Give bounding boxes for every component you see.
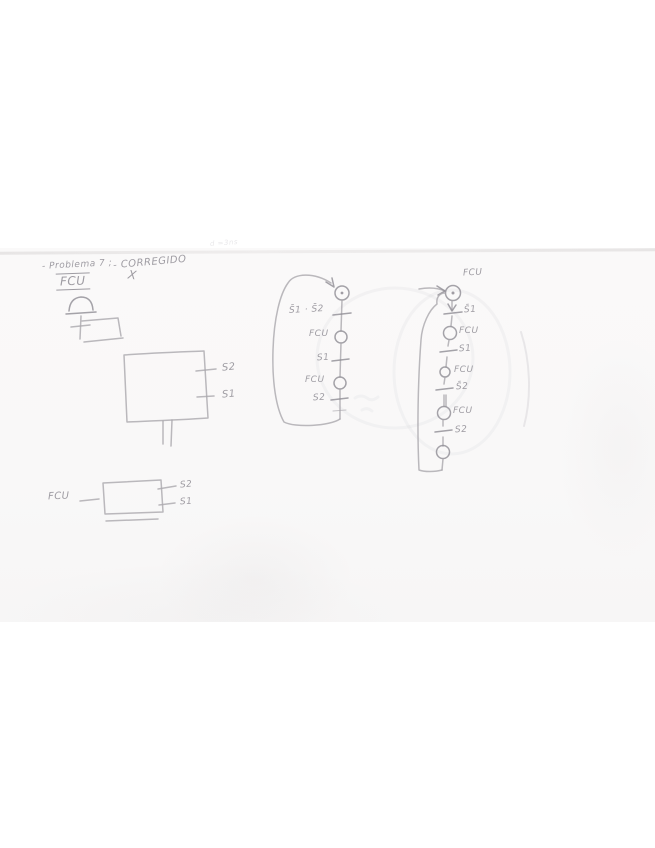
mid-transition-label-1: S̄1 · S̄2 xyxy=(289,305,324,316)
mid-state-label-2: FCU xyxy=(305,376,325,385)
right-state-label-1: FCU xyxy=(459,327,479,336)
initial-state-dot xyxy=(452,292,455,295)
pencil-drawing-layer xyxy=(0,0,655,848)
mid-transition-label-2: S1 xyxy=(317,354,330,364)
chain-segment xyxy=(341,300,342,331)
actuator-symbol xyxy=(66,297,123,342)
chain-segment-retraced xyxy=(444,395,446,406)
erased-scribble xyxy=(355,396,378,411)
tank-outline xyxy=(124,351,208,422)
chain-segment xyxy=(451,316,452,326)
right-state-label-3: FCU xyxy=(453,407,473,416)
dome-shape xyxy=(69,297,93,311)
bracket-bottom-line xyxy=(84,338,123,342)
photographed-notebook-page: d =3ns - Problema 7 ; - CORREGIDO X FCU xyxy=(0,0,655,848)
return-loop-line xyxy=(273,275,340,425)
tank-box xyxy=(124,351,216,446)
block-input-label: FCU xyxy=(48,492,70,503)
rod-line xyxy=(80,316,81,339)
transition-tick-4 xyxy=(435,430,452,432)
right-transition-label-1: S̄1 xyxy=(464,306,477,316)
block-underline xyxy=(106,519,158,521)
stray-pencil-arc xyxy=(521,332,529,426)
block-outline xyxy=(103,480,163,514)
transition-tick-2 xyxy=(440,350,457,352)
transition-tick-3 xyxy=(331,398,348,400)
sensor-tick-s2 xyxy=(196,369,216,371)
state-circle-fcu-1 xyxy=(335,331,347,343)
right-chain-title: FCU xyxy=(463,268,483,278)
state-circle-fcu-1 xyxy=(444,327,457,340)
fcu-block xyxy=(80,480,176,521)
output-tick-s1 xyxy=(159,503,175,505)
tank-sensor-label-bottom: S1 xyxy=(222,389,237,400)
block-output-label-top: S2 xyxy=(180,480,193,490)
right-transition-label-2: S1 xyxy=(459,345,472,355)
transition-tick-1 xyxy=(444,312,462,314)
middle-state-chain xyxy=(273,275,351,425)
return-loop-line xyxy=(418,293,445,472)
right-transition-label-4: S2 xyxy=(455,426,468,436)
initial-state-dot xyxy=(341,292,344,295)
mid-transition-label-3: S2 xyxy=(313,394,326,404)
state-circle-fcu-2 xyxy=(440,367,450,377)
block-output-label-bottom: S1 xyxy=(180,498,193,508)
tank-sensor-label-top: S2 xyxy=(222,362,237,373)
right-state-label-2: FCU xyxy=(454,366,474,375)
bracket-top-line xyxy=(82,318,121,336)
mid-state-label-1: FCU xyxy=(309,330,329,339)
outlet-leg-right xyxy=(171,420,172,446)
dome-base-line xyxy=(66,312,96,314)
transition-tick-3 xyxy=(436,388,453,390)
input-wire xyxy=(80,499,99,501)
chain-tail xyxy=(442,459,443,470)
chain-segment xyxy=(444,377,445,384)
rod-cross-tick xyxy=(71,325,90,327)
sensor-tick-s1 xyxy=(197,396,214,397)
state-circle-fcu-2 xyxy=(334,377,346,389)
transition-tick-2 xyxy=(332,359,349,361)
chain-segment xyxy=(446,357,447,367)
chain-segment xyxy=(448,340,449,346)
right-transition-label-3: S̄2 xyxy=(456,383,469,393)
